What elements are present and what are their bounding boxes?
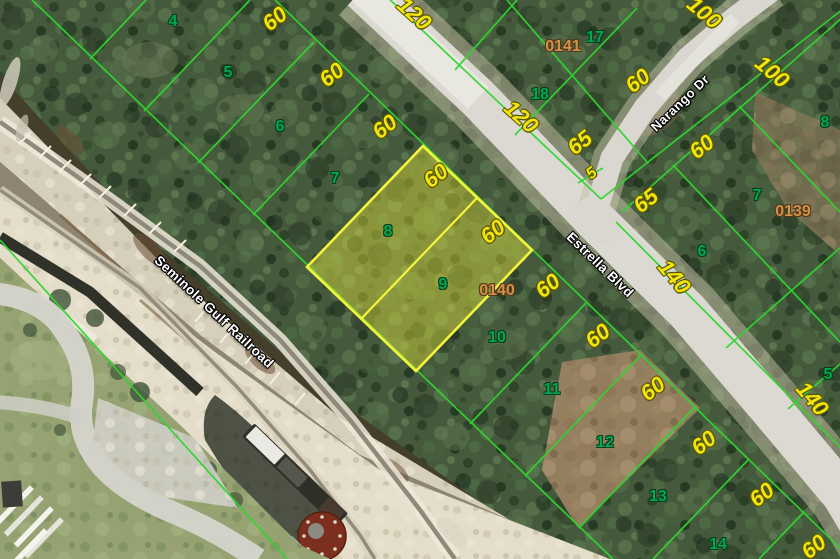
lot-number-13: 13 [649, 489, 667, 505]
lot-number-10: 10 [488, 330, 506, 346]
street-label-narango-dr: Narango Dr [649, 72, 712, 133]
dimension-label-60: 60 [746, 479, 779, 511]
lot-number-7: 7 [331, 171, 340, 187]
lot-number-8: 8 [384, 224, 393, 240]
lot-number-7: 7 [753, 188, 762, 204]
dimension-label-60: 60 [217, 0, 250, 4]
dimension-label-60: 60 [582, 320, 615, 352]
parcel-map-image: Estrella BlvdNarango DrSeminole Gulf Rai… [0, 0, 840, 559]
dimension-label-60: 60 [477, 216, 510, 248]
lot-number-6: 6 [698, 244, 707, 260]
lot-number-4: 4 [169, 14, 178, 30]
dimension-label-60: 60 [637, 373, 670, 405]
dimension-label-60: 60 [686, 131, 719, 163]
dimension-label-60: 60 [259, 3, 292, 35]
lot-number-14: 14 [709, 537, 727, 553]
lot-number-11: 11 [544, 382, 561, 398]
dimension-label-60: 60 [316, 59, 349, 91]
dimension-label-120: 120 [393, 0, 435, 34]
lot-number-8: 8 [821, 115, 830, 131]
plat-number-0140: 0140 [479, 283, 515, 299]
plat-number-0139: 0139 [775, 204, 811, 220]
street-label-seminole-gulf-railroad: Seminole Gulf Railroad [152, 253, 276, 370]
dimension-label-140: 140 [654, 256, 694, 298]
dimension-label-60: 60 [622, 65, 655, 97]
map-labels-layer: Estrella BlvdNarango DrSeminole Gulf Rai… [0, 0, 840, 559]
dimension-label-60: 60 [420, 160, 453, 192]
lot-number-6: 6 [276, 119, 285, 135]
lot-number-5: 5 [224, 65, 233, 81]
dimension-label-65: 65 [564, 127, 597, 159]
lot-number-12: 12 [596, 435, 614, 451]
lot-number-9: 9 [439, 277, 448, 293]
lot-number-5: 5 [824, 367, 833, 383]
lot-number-18: 18 [531, 87, 549, 103]
dimension-label-60: 60 [798, 531, 831, 559]
lot-number-17: 17 [586, 30, 604, 46]
dimension-label-60: 60 [369, 111, 402, 143]
dimension-label-65: 65 [630, 185, 663, 217]
dimension-label-60: 60 [532, 270, 565, 302]
dimension-label-5: 5 [584, 165, 601, 183]
dimension-label-60: 60 [688, 427, 721, 459]
dimension-label-100: 100 [751, 52, 793, 92]
dimension-label-140: 140 [792, 378, 832, 420]
dimension-label-100: 100 [683, 0, 725, 33]
plat-number-0141: 0141 [545, 39, 581, 55]
street-label-estrella-blvd: Estrella Blvd [564, 230, 636, 300]
